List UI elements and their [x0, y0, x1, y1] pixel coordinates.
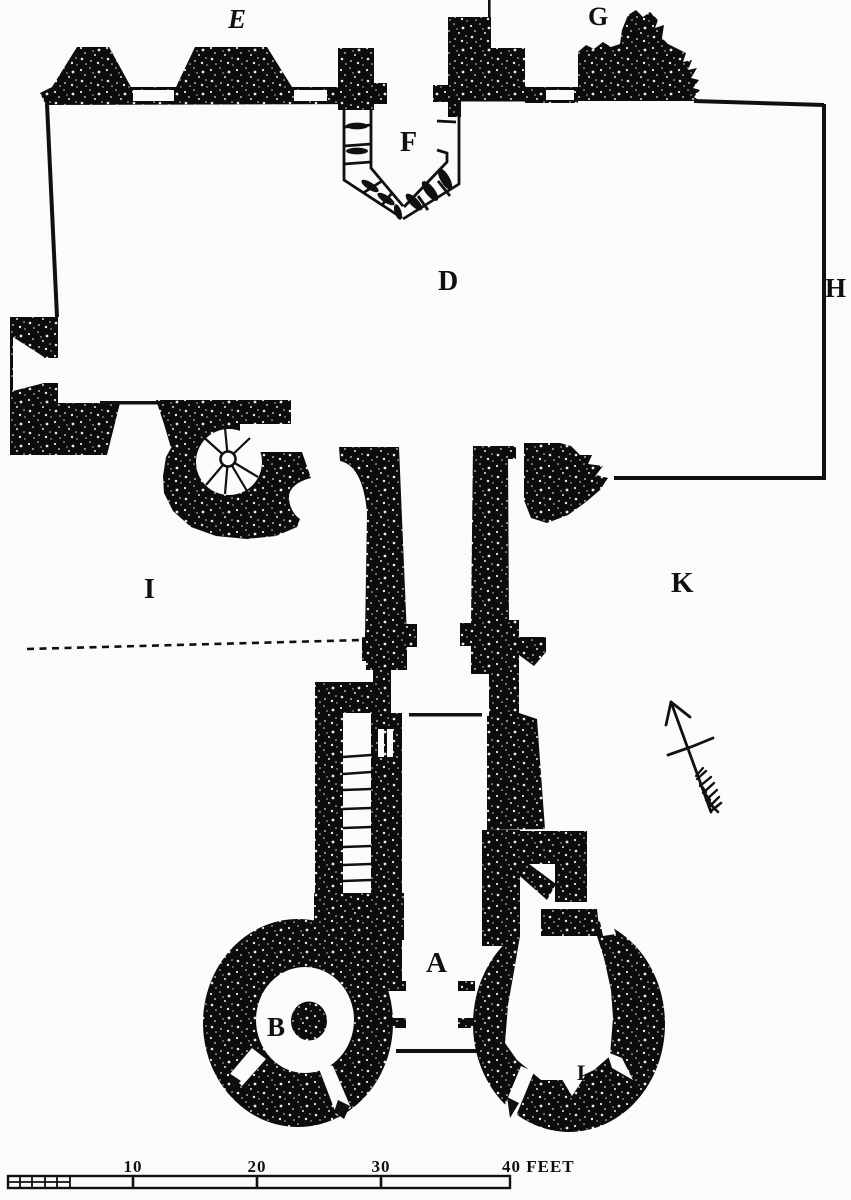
svg-text:F: F — [400, 127, 417, 158]
svg-text:I: I — [144, 574, 155, 605]
svg-text:B: B — [267, 1012, 285, 1042]
svg-text:A: A — [426, 947, 447, 979]
svg-text:H: H — [825, 273, 846, 303]
svg-text:L: L — [577, 1060, 592, 1085]
svg-text:K: K — [671, 567, 694, 599]
svg-text:D: D — [438, 266, 458, 297]
svg-text:E: E — [227, 4, 246, 34]
svg-text:10: 10 — [124, 1157, 143, 1176]
svg-text:40 FEET: 40 FEET — [502, 1157, 575, 1176]
svg-text:G: G — [588, 2, 608, 31]
svg-text:20: 20 — [248, 1157, 267, 1176]
svg-text:30: 30 — [372, 1157, 391, 1176]
